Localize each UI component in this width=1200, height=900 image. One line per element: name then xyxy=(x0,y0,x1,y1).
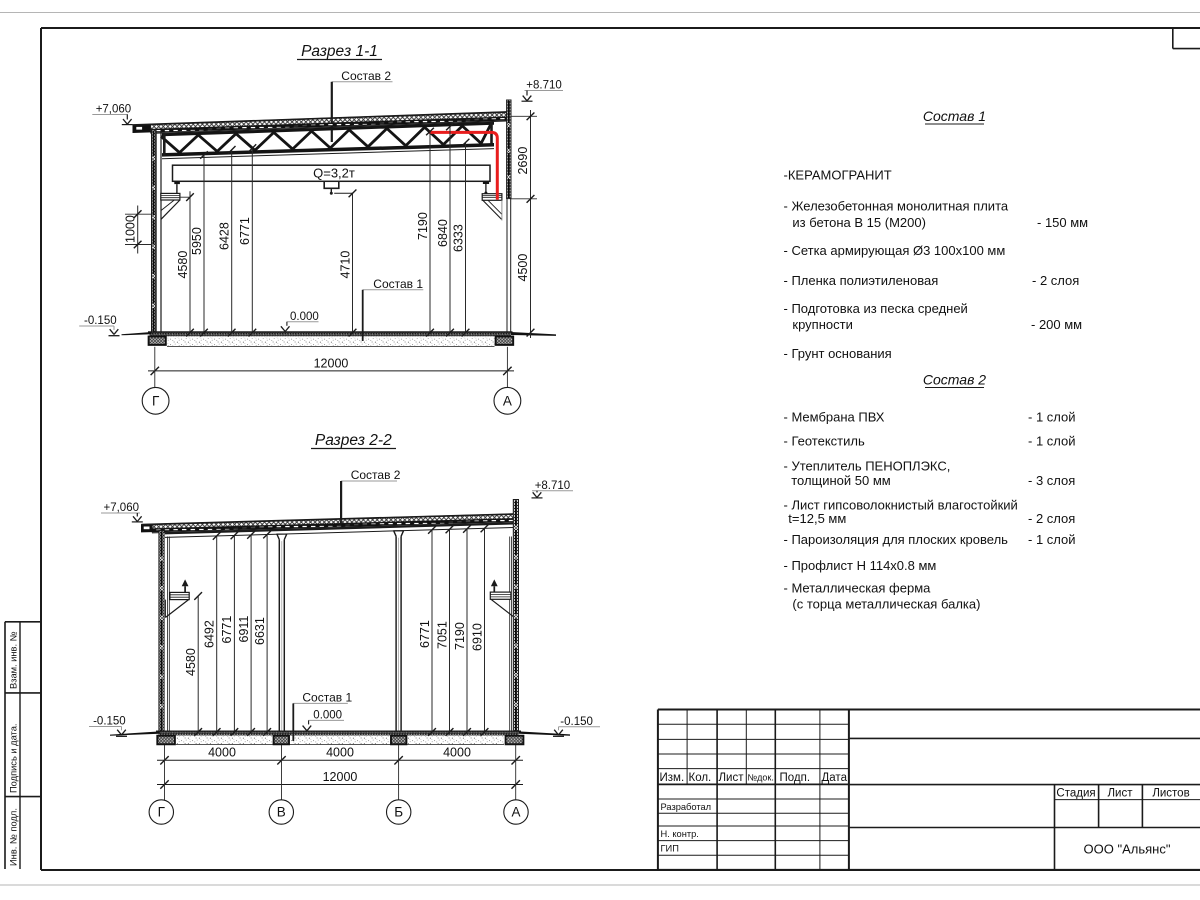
svg-text:12000: 12000 xyxy=(314,356,349,370)
svg-text:4000: 4000 xyxy=(326,746,354,760)
svg-text:- Металлическая ферма: - Металлическая ферма xyxy=(784,580,932,595)
svg-text:4000: 4000 xyxy=(443,746,471,760)
svg-text:- Подготовка из песка средней: - Подготовка из песка средней xyxy=(784,301,968,316)
svg-text:1000: 1000 xyxy=(123,215,137,243)
svg-text:Г: Г xyxy=(152,394,160,409)
svg-text:Состав 2: Состав 2 xyxy=(341,69,391,83)
svg-text:- Сетка армирующая Ø3 100х100: - Сетка армирующая Ø3 100х100 мм xyxy=(784,243,1006,258)
svg-text:6771: 6771 xyxy=(418,620,432,648)
svg-text:Состав 2: Состав 2 xyxy=(351,468,401,482)
svg-text:6631: 6631 xyxy=(253,617,267,645)
svg-text:- 200 мм: - 200 мм xyxy=(1031,317,1082,332)
svg-text:- 2 слоя: - 2 слоя xyxy=(1032,273,1079,288)
svg-text:4000: 4000 xyxy=(208,746,236,760)
svg-text:(с торца металлическая балка): (с торца металлическая балка) xyxy=(792,596,980,611)
svg-text:толщиной 50 мм: толщиной 50 мм xyxy=(791,473,891,488)
svg-text:+8.710: +8.710 xyxy=(535,480,571,492)
svg-text:+7,060: +7,060 xyxy=(104,502,140,514)
svg-text:крупности: крупности xyxy=(792,317,852,332)
svg-text:-0.150: -0.150 xyxy=(84,315,117,327)
svg-text:- 1 слой: - 1 слой xyxy=(1028,410,1076,425)
svg-text:Разрез 1-1: Разрез 1-1 xyxy=(301,43,378,60)
svg-text:- Железобетонная монолитная п: - Железобетонная монолитная плита xyxy=(784,199,1009,214)
svg-text:+8.710: +8.710 xyxy=(526,80,562,92)
svg-text:Подпись и дата.: Подпись и дата. xyxy=(9,724,19,793)
svg-text:- 1 слой: - 1 слой xyxy=(1028,532,1076,547)
svg-text:6428: 6428 xyxy=(218,222,232,250)
svg-text:- Пароизоляция для плоских кро: - Пароизоляция для плоских кровель xyxy=(784,532,1009,547)
svg-text:ГИП: ГИП xyxy=(661,844,679,854)
svg-text:+7,060: +7,060 xyxy=(96,104,132,116)
svg-text:6771: 6771 xyxy=(238,217,252,245)
svg-text:- 1 слой: - 1 слой xyxy=(1028,434,1076,449)
svg-text:Стадия: Стадия xyxy=(1056,787,1095,799)
svg-text:-0.150: -0.150 xyxy=(93,716,126,728)
svg-text:Н. контр.: Н. контр. xyxy=(661,829,699,839)
svg-text:- Пленка полиэтиленовая: - Пленка полиэтиленовая xyxy=(784,273,939,288)
svg-text:- 3 слоя: - 3 слоя xyxy=(1028,473,1075,488)
svg-text:-0.150: -0.150 xyxy=(560,716,593,728)
svg-text:А: А xyxy=(511,805,520,820)
svg-text:В: В xyxy=(277,805,286,820)
svg-text:Листов: Листов xyxy=(1152,787,1189,799)
svg-text:Лист: Лист xyxy=(719,772,745,784)
svg-text:Состав 2: Состав 2 xyxy=(923,372,986,388)
svg-text:4580: 4580 xyxy=(184,648,198,676)
svg-text:Дата: Дата xyxy=(822,772,848,784)
svg-text:- Грунт основания: - Грунт основания xyxy=(784,346,892,361)
svg-text:7190: 7190 xyxy=(416,212,430,240)
svg-text:Q=3,2т: Q=3,2т xyxy=(313,166,355,181)
svg-text:6492: 6492 xyxy=(203,620,217,648)
svg-text:Изм.: Изм. xyxy=(660,772,685,784)
svg-text:2690: 2690 xyxy=(516,147,530,175)
svg-text:7051: 7051 xyxy=(435,621,449,649)
svg-text:- Мембрана ПВХ: - Мембрана ПВХ xyxy=(784,410,885,425)
svg-text:t=12,5 мм: t=12,5 мм xyxy=(788,511,846,526)
svg-text:- Утеплитель ПЕНОПЛЭКС,: - Утеплитель ПЕНОПЛЭКС, xyxy=(784,459,951,474)
svg-text:5950: 5950 xyxy=(190,227,204,255)
svg-text:0.000: 0.000 xyxy=(313,710,342,722)
svg-text:Б: Б xyxy=(394,805,403,820)
svg-text:- 150 мм: - 150 мм xyxy=(1037,215,1088,230)
svg-text:- Геотекстиль: - Геотекстиль xyxy=(784,434,865,449)
svg-text:Инв. № подл.: Инв. № подл. xyxy=(9,808,19,866)
svg-text:4710: 4710 xyxy=(338,251,352,279)
svg-text:4500: 4500 xyxy=(516,254,530,282)
svg-text:Состав 1: Состав 1 xyxy=(923,108,986,124)
svg-text:0.000: 0.000 xyxy=(290,311,319,323)
svg-text:12000: 12000 xyxy=(323,770,358,784)
svg-text:6840: 6840 xyxy=(436,219,450,247)
svg-text:6771: 6771 xyxy=(220,616,234,644)
svg-text:6333: 6333 xyxy=(451,224,465,252)
svg-text:7190: 7190 xyxy=(453,622,467,650)
svg-text:Кол.: Кол. xyxy=(689,772,712,784)
svg-text:ООО "Альянс": ООО "Альянс" xyxy=(1084,842,1171,857)
svg-text:- Профлист Н 114х0.8 мм: - Профлист Н 114х0.8 мм xyxy=(784,558,937,573)
svg-text:6911: 6911 xyxy=(237,616,251,643)
svg-text:Лист: Лист xyxy=(1108,787,1134,799)
svg-text:Подп.: Подп. xyxy=(780,772,811,784)
svg-text:Разрез 2-2: Разрез 2-2 xyxy=(315,432,392,449)
svg-text:Состав 1: Состав 1 xyxy=(373,277,423,291)
svg-text:-КЕРАМОГРАНИТ: -КЕРАМОГРАНИТ xyxy=(784,168,892,183)
svg-text:- 2 слоя: - 2 слоя xyxy=(1028,511,1075,526)
svg-text:Взам. инв. №: Взам. инв. № xyxy=(9,631,19,689)
svg-text:6910: 6910 xyxy=(470,623,484,651)
svg-text:Г: Г xyxy=(158,805,166,820)
svg-text:из бетона В 15 (М200): из бетона В 15 (М200) xyxy=(792,215,926,230)
svg-text:Разработал: Разработал xyxy=(661,802,712,812)
svg-text:№док.: №док. xyxy=(748,773,774,783)
svg-text:4580: 4580 xyxy=(176,251,190,279)
svg-text:А: А xyxy=(503,394,512,409)
svg-text:Состав 1: Состав 1 xyxy=(302,691,352,705)
